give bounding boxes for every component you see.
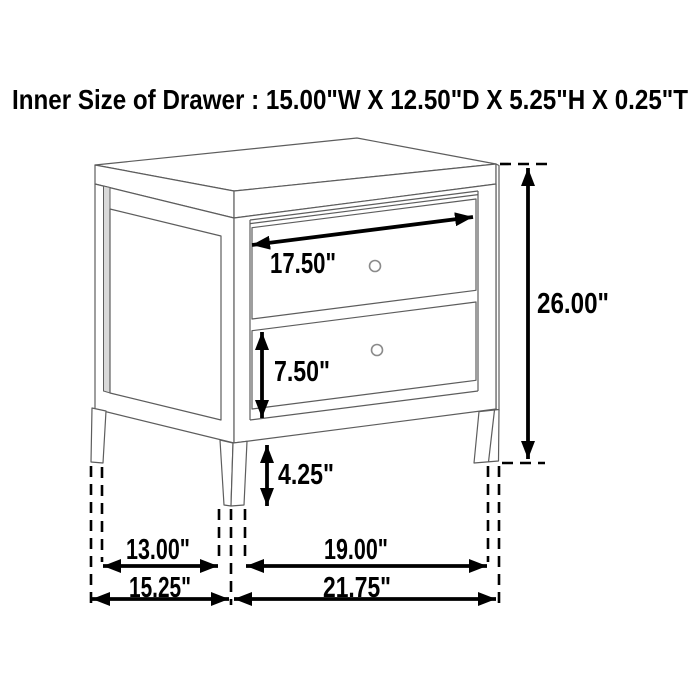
dim-label-front-leg-span: 19.00" bbox=[324, 534, 388, 566]
cabinet-drawing bbox=[91, 138, 499, 506]
dim-label-leg-height: 4.25" bbox=[278, 459, 334, 491]
dim-label-overall-width: 21.75" bbox=[323, 572, 391, 604]
drawer-1-knob bbox=[370, 261, 381, 272]
dim-label-drawer-width: 17.50" bbox=[270, 248, 336, 280]
diagram-title: Inner Size of Drawer : 15.00"W X 12.50"D… bbox=[12, 84, 688, 115]
dim-label-side-leg-span: 13.00" bbox=[126, 534, 190, 566]
front-left-leg-front bbox=[231, 441, 247, 506]
front-right-leg bbox=[474, 410, 499, 464]
back-stile-shade bbox=[104, 186, 111, 393]
dimension-diagram-page: Inner Size of Drawer : 15.00"W X 12.50"D… bbox=[0, 0, 700, 700]
drawer-2-knob bbox=[372, 345, 383, 356]
back-left-leg bbox=[91, 408, 106, 463]
nightstand-diagram: Inner Size of Drawer : 15.00"W X 12.50"D… bbox=[0, 0, 700, 700]
dim-label-bottom-drawer-height: 7.50" bbox=[274, 356, 330, 388]
dim-label-overall-depth: 15.25" bbox=[129, 572, 191, 604]
dim-label-overall-height: 26.00" bbox=[537, 288, 609, 320]
